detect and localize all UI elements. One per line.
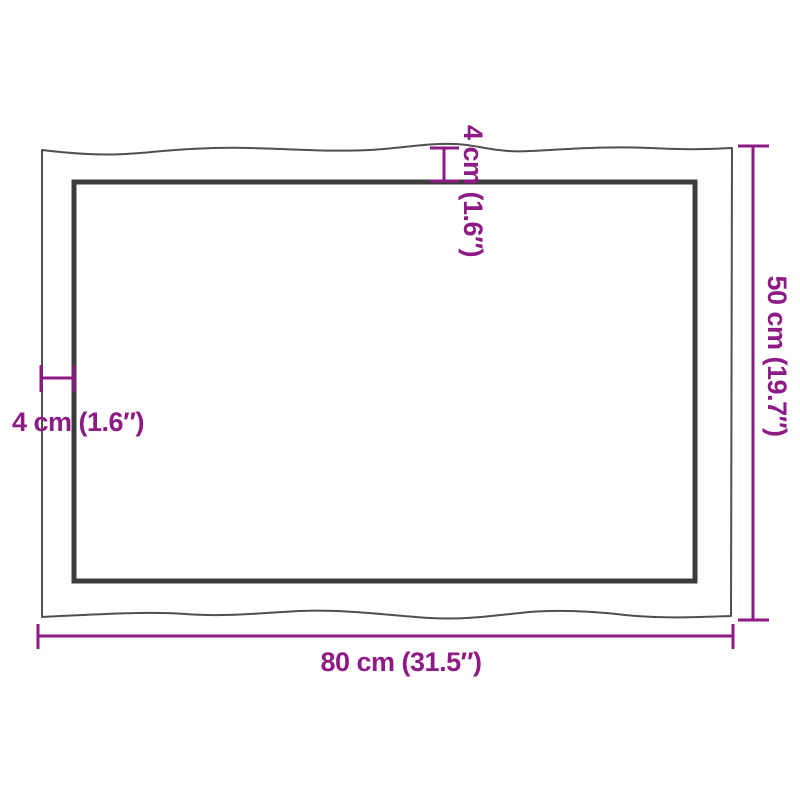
- dim-thickness-top-label: 4 cm (1.6″): [458, 125, 488, 257]
- dim-thickness-left: 4 cm (1.6″): [12, 365, 144, 437]
- dim-width-label: 80 cm (31.5″): [320, 647, 481, 677]
- dimension-diagram: 4 cm (1.6″) 4 cm (1.6″) 50 cm (19.7″) 80…: [0, 0, 800, 800]
- tabletop-outer-live-edge: [42, 144, 732, 619]
- dim-height-label: 50 cm (19.7″): [762, 275, 792, 436]
- tabletop: [42, 144, 732, 619]
- tabletop-inner-edge: [74, 182, 695, 581]
- dim-width: 80 cm (31.5″): [38, 624, 733, 677]
- dim-height: 50 cm (19.7″): [738, 146, 792, 620]
- dim-thickness-left-label: 4 cm (1.6″): [12, 407, 144, 437]
- diagram-canvas: 4 cm (1.6″) 4 cm (1.6″) 50 cm (19.7″) 80…: [0, 0, 800, 800]
